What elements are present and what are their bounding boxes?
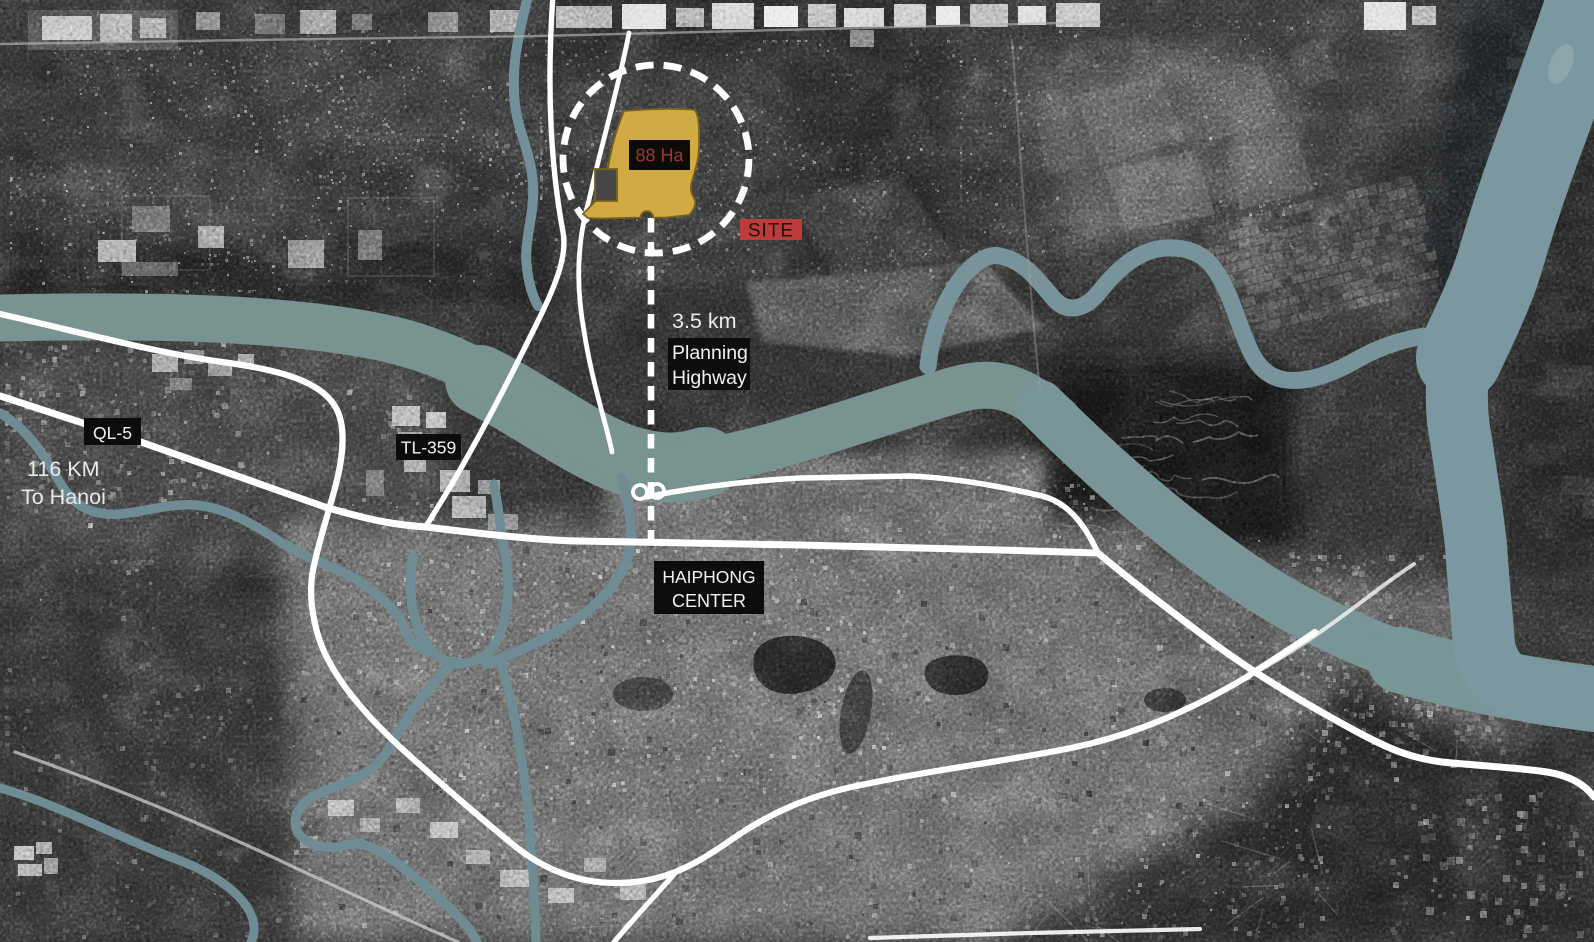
svg-text:HAIPHONG: HAIPHONG [662, 567, 755, 587]
svg-text:SITE: SITE [748, 221, 794, 242]
svg-text:88 Ha: 88 Ha [635, 146, 684, 166]
svg-text:QL-5: QL-5 [93, 423, 132, 443]
svg-text:3.5 km: 3.5 km [672, 309, 737, 333]
svg-text:TL-359: TL-359 [401, 438, 456, 458]
svg-text:CENTER: CENTER [672, 591, 746, 611]
svg-text:116 KM: 116 KM [27, 457, 100, 481]
svg-text:Planning: Planning [672, 342, 748, 364]
svg-text:Highway: Highway [672, 367, 747, 389]
svg-text:To Hanoi: To Hanoi [21, 485, 106, 509]
